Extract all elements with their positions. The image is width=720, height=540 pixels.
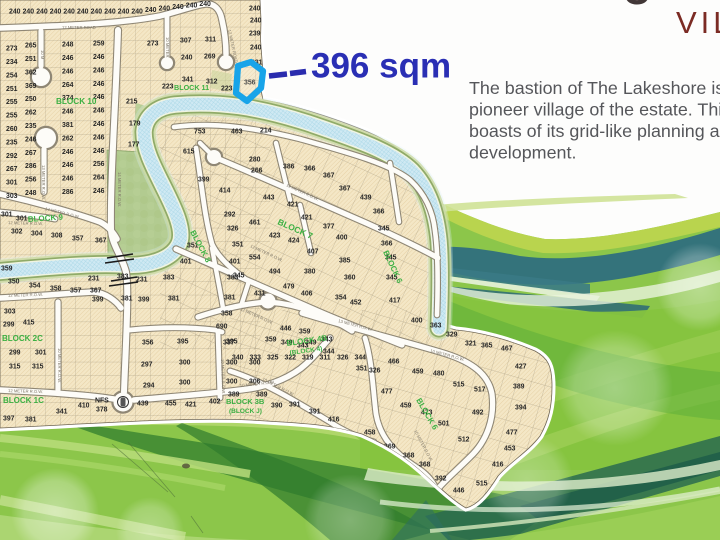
svg-text:369: 369 [25,83,37,90]
svg-text:479: 479 [283,284,295,291]
svg-text:10 M: 10 M [40,50,45,60]
svg-text:214: 214 [260,128,272,135]
svg-text:357: 357 [70,288,82,295]
svg-text:753: 753 [194,129,206,136]
svg-text:264: 264 [93,175,105,182]
svg-text:223: 223 [221,86,233,93]
svg-text:NFS: NFS [95,398,109,405]
svg-text:414: 414 [219,188,231,195]
svg-text:381: 381 [121,296,133,303]
svg-text:554: 554 [249,255,261,262]
svg-text:358: 358 [221,311,233,318]
svg-text:341: 341 [56,409,68,416]
svg-text:280: 280 [249,157,261,164]
svg-text:303: 303 [6,193,18,200]
svg-text:333: 333 [250,355,262,362]
svg-text:246: 246 [62,68,74,75]
svg-text:380: 380 [304,269,316,276]
svg-text:256: 256 [93,161,105,168]
svg-text:246: 246 [93,81,105,88]
svg-text:458: 458 [364,430,376,437]
svg-text:461: 461 [249,220,261,227]
svg-text:368: 368 [419,462,431,469]
svg-text:240: 240 [91,9,103,16]
svg-text:246: 246 [93,188,105,195]
svg-text:326: 326 [337,355,349,362]
svg-text:10 METER: 10 METER [165,37,170,57]
svg-text:BLOCK 10: BLOCK 10 [56,97,97,106]
svg-text:260: 260 [6,126,18,133]
svg-text:246: 246 [62,55,74,62]
svg-text:254: 254 [6,72,18,79]
svg-text:492: 492 [472,410,484,417]
svg-text:407: 407 [307,249,319,256]
svg-text:255: 255 [6,113,18,120]
svg-text:boasts of its grid-like planni: boasts of its grid-like planning and s [469,121,720,141]
svg-text:415: 415 [23,320,35,327]
svg-text:12 METER ROAD: 12 METER ROAD [62,25,96,30]
svg-text:311: 311 [205,37,216,44]
svg-text:385: 385 [339,258,351,265]
svg-text:240: 240 [23,9,35,16]
svg-text:240: 240 [249,6,261,13]
svg-text:367: 367 [339,186,351,193]
svg-text:446: 446 [280,326,292,333]
svg-text:BLOCK 1C: BLOCK 1C [3,396,44,405]
svg-text:399: 399 [138,297,150,304]
svg-text:337: 337 [223,340,235,347]
svg-text:246: 246 [62,109,74,116]
svg-text:pioneer village of the estate.: pioneer village of the estate. This se [469,100,720,120]
svg-text:240: 240 [131,9,143,16]
svg-text:294: 294 [143,383,155,390]
svg-text:477: 477 [506,430,518,437]
svg-text:240: 240 [181,55,193,62]
svg-text:351: 351 [232,242,244,249]
svg-text:325: 325 [267,355,279,362]
svg-text:240: 240 [104,9,116,16]
svg-text:315: 315 [32,364,44,371]
svg-text:381: 381 [224,295,236,302]
svg-text:303: 303 [4,309,16,316]
svg-text:329: 329 [446,332,458,339]
svg-text:424: 424 [288,238,300,245]
svg-text:321: 321 [465,341,477,348]
svg-text:446: 446 [453,488,465,495]
svg-text:246: 246 [93,67,105,74]
svg-text:365: 365 [481,343,493,350]
svg-text:356: 356 [142,340,154,347]
svg-text:360: 360 [344,275,356,282]
svg-text:179: 179 [129,121,141,128]
svg-text:251: 251 [6,86,18,93]
svg-text:292: 292 [6,153,18,160]
svg-text:234: 234 [6,59,18,66]
svg-text:494: 494 [269,269,281,276]
svg-text:392: 392 [435,476,447,483]
svg-text:391: 391 [309,409,321,416]
svg-text:215: 215 [126,99,138,106]
svg-text:240: 240 [145,7,157,14]
svg-text:402: 402 [209,399,221,406]
svg-text:326: 326 [227,226,239,233]
svg-text:459: 459 [400,403,412,410]
svg-text:BLOCK 11: BLOCK 11 [174,83,209,92]
svg-text:401: 401 [180,259,192,266]
svg-text:246: 246 [62,149,74,156]
svg-text:366: 366 [304,166,316,173]
svg-text:266: 266 [251,168,263,175]
svg-text:14 METER R.O.W.: 14 METER R.O.W. [117,172,122,207]
svg-text:366: 366 [373,209,385,216]
svg-text:240: 240 [250,18,262,25]
svg-text:367: 367 [90,288,102,295]
svg-text:255: 255 [6,99,18,106]
svg-text:286: 286 [62,189,74,196]
svg-text:366: 366 [381,241,393,248]
svg-text:231: 231 [136,277,148,284]
svg-text:240: 240 [77,9,89,16]
svg-text:300: 300 [179,360,191,367]
svg-text:423: 423 [269,233,281,240]
svg-text:319: 319 [302,355,314,362]
svg-text:246: 246 [93,108,105,115]
svg-text:240: 240 [9,9,21,16]
svg-text:395: 395 [177,339,189,346]
svg-text:300: 300 [226,379,238,386]
svg-text:262: 262 [62,135,74,142]
svg-text:246: 246 [93,54,105,61]
svg-text:246: 246 [93,134,105,141]
svg-text:416: 416 [328,417,340,424]
svg-text:459: 459 [412,369,424,376]
svg-text:10 METER R.O.W.: 10 METER R.O.W. [57,348,62,383]
svg-text:301: 301 [1,212,13,219]
svg-text:304: 304 [31,231,43,238]
svg-text:515: 515 [476,481,488,488]
svg-text:240: 240 [118,9,130,16]
svg-text:367: 367 [95,238,107,245]
svg-text:421: 421 [185,402,197,409]
svg-text:177: 177 [128,142,140,149]
svg-text:246: 246 [62,176,74,183]
svg-text:690: 690 [216,324,228,331]
svg-text:416: 416 [492,462,504,469]
svg-text:381: 381 [25,417,37,424]
svg-text:301: 301 [35,350,47,357]
svg-text:240: 240 [199,1,211,8]
svg-text:264: 264 [62,82,74,89]
svg-text:240: 240 [63,9,75,16]
svg-text:240: 240 [50,9,62,16]
svg-text:292: 292 [224,212,236,219]
svg-text:397: 397 [3,416,15,423]
svg-text:381: 381 [62,122,74,129]
svg-text:512: 512 [458,437,470,444]
svg-text:299: 299 [9,350,21,357]
svg-text:248: 248 [62,42,74,49]
svg-text:350: 350 [8,279,20,286]
svg-text:340: 340 [232,355,244,362]
svg-text:400: 400 [336,235,348,242]
svg-text:13 METER R.O.W.: 13 METER R.O.W. [41,165,46,200]
svg-text:301: 301 [6,180,18,187]
svg-text:400: 400 [411,318,423,325]
svg-text:240: 240 [172,4,184,11]
svg-text:377: 377 [323,224,335,231]
svg-text:299: 299 [3,322,15,329]
svg-text:359: 359 [299,329,311,336]
svg-text:394: 394 [515,405,527,412]
svg-text:467: 467 [501,346,513,353]
svg-text:269: 269 [204,54,216,61]
svg-text:240: 240 [36,9,48,16]
svg-text:344: 344 [355,355,367,362]
svg-text:311: 311 [320,355,331,362]
svg-text:363: 363 [430,323,442,330]
svg-text:390: 390 [271,403,283,410]
svg-text:378: 378 [96,407,108,414]
svg-text:455: 455 [165,401,177,408]
svg-text:399: 399 [92,297,104,304]
svg-text:421: 421 [301,215,313,222]
svg-text:401: 401 [229,259,241,266]
svg-text:259: 259 [93,41,105,48]
svg-text:273: 273 [147,41,159,48]
svg-text:452: 452 [350,300,362,307]
svg-text:326: 326 [369,368,381,375]
svg-text:246: 246 [93,148,105,155]
svg-text:477: 477 [381,389,393,396]
svg-text:223: 223 [162,84,174,91]
svg-text:VIL: VIL [676,5,720,40]
svg-text:308: 308 [51,233,63,240]
svg-text:231: 231 [88,276,100,283]
svg-text:286: 286 [25,163,37,170]
svg-text:383: 383 [163,275,175,282]
svg-text:410: 410 [78,403,90,410]
svg-text:367: 367 [323,173,335,180]
svg-text:354: 354 [29,283,41,290]
svg-text:development.: development. [469,143,576,163]
svg-text:256: 256 [25,177,37,184]
svg-text:BLOCK 2C: BLOCK 2C [2,334,43,343]
svg-text:302: 302 [11,229,23,236]
svg-text:421: 421 [287,202,299,209]
svg-text:The bastion of The Lakeshore i: The bastion of The Lakeshore is one [469,78,720,98]
svg-text:427: 427 [515,364,527,371]
svg-text:239: 239 [249,31,261,38]
svg-text:345: 345 [378,226,390,233]
svg-text:615: 615 [183,149,195,156]
svg-text:517: 517 [474,387,486,394]
svg-text:262: 262 [25,110,37,117]
svg-text:240: 240 [159,6,171,13]
svg-text:300: 300 [179,380,191,387]
svg-text:248: 248 [25,190,37,197]
svg-text:396 sqm: 396 sqm [311,47,451,86]
svg-text:315: 315 [9,364,21,371]
svg-text:297: 297 [141,362,153,369]
svg-text:246: 246 [62,162,74,169]
svg-text:391: 391 [289,402,301,409]
svg-text:246: 246 [25,136,37,143]
svg-text:(BLOCK J): (BLOCK J) [229,408,262,415]
svg-text:250: 250 [25,96,37,103]
svg-text:466: 466 [388,359,400,366]
svg-text:381: 381 [168,296,180,303]
svg-text:235: 235 [25,123,37,130]
svg-text:463: 463 [231,129,243,136]
svg-text:240: 240 [250,45,262,52]
svg-text:439: 439 [137,401,149,408]
svg-text:273: 273 [6,46,18,53]
svg-text:359: 359 [1,266,13,273]
svg-text:359: 359 [265,337,277,344]
svg-text:267: 267 [25,150,37,157]
svg-text:480: 480 [433,371,445,378]
svg-text:406: 406 [301,291,313,298]
svg-text:251: 251 [25,56,37,63]
svg-text:431: 431 [254,291,266,298]
svg-text:386: 386 [283,164,295,171]
svg-text:362: 362 [25,69,37,76]
svg-text:383: 383 [117,274,129,281]
svg-text:351: 351 [356,366,368,373]
svg-text:453: 453 [504,446,516,453]
svg-text:439: 439 [360,195,372,202]
svg-text:307: 307 [180,38,192,45]
svg-text:357: 357 [72,236,84,243]
svg-text:358: 358 [50,286,62,293]
svg-text:399: 399 [198,177,210,184]
svg-text:240: 240 [186,3,198,10]
svg-text:BLOCK 3B: BLOCK 3B [226,397,265,406]
svg-text:265: 265 [25,43,37,50]
svg-text:389: 389 [513,384,525,391]
svg-text:267: 267 [6,166,18,173]
svg-text:443: 443 [263,195,275,202]
svg-text:246: 246 [93,121,105,128]
svg-text:235: 235 [6,139,18,146]
svg-text:354: 354 [335,295,347,302]
svg-text:345: 345 [233,273,245,280]
svg-text:417: 417 [389,298,401,305]
svg-text:515: 515 [453,382,465,389]
